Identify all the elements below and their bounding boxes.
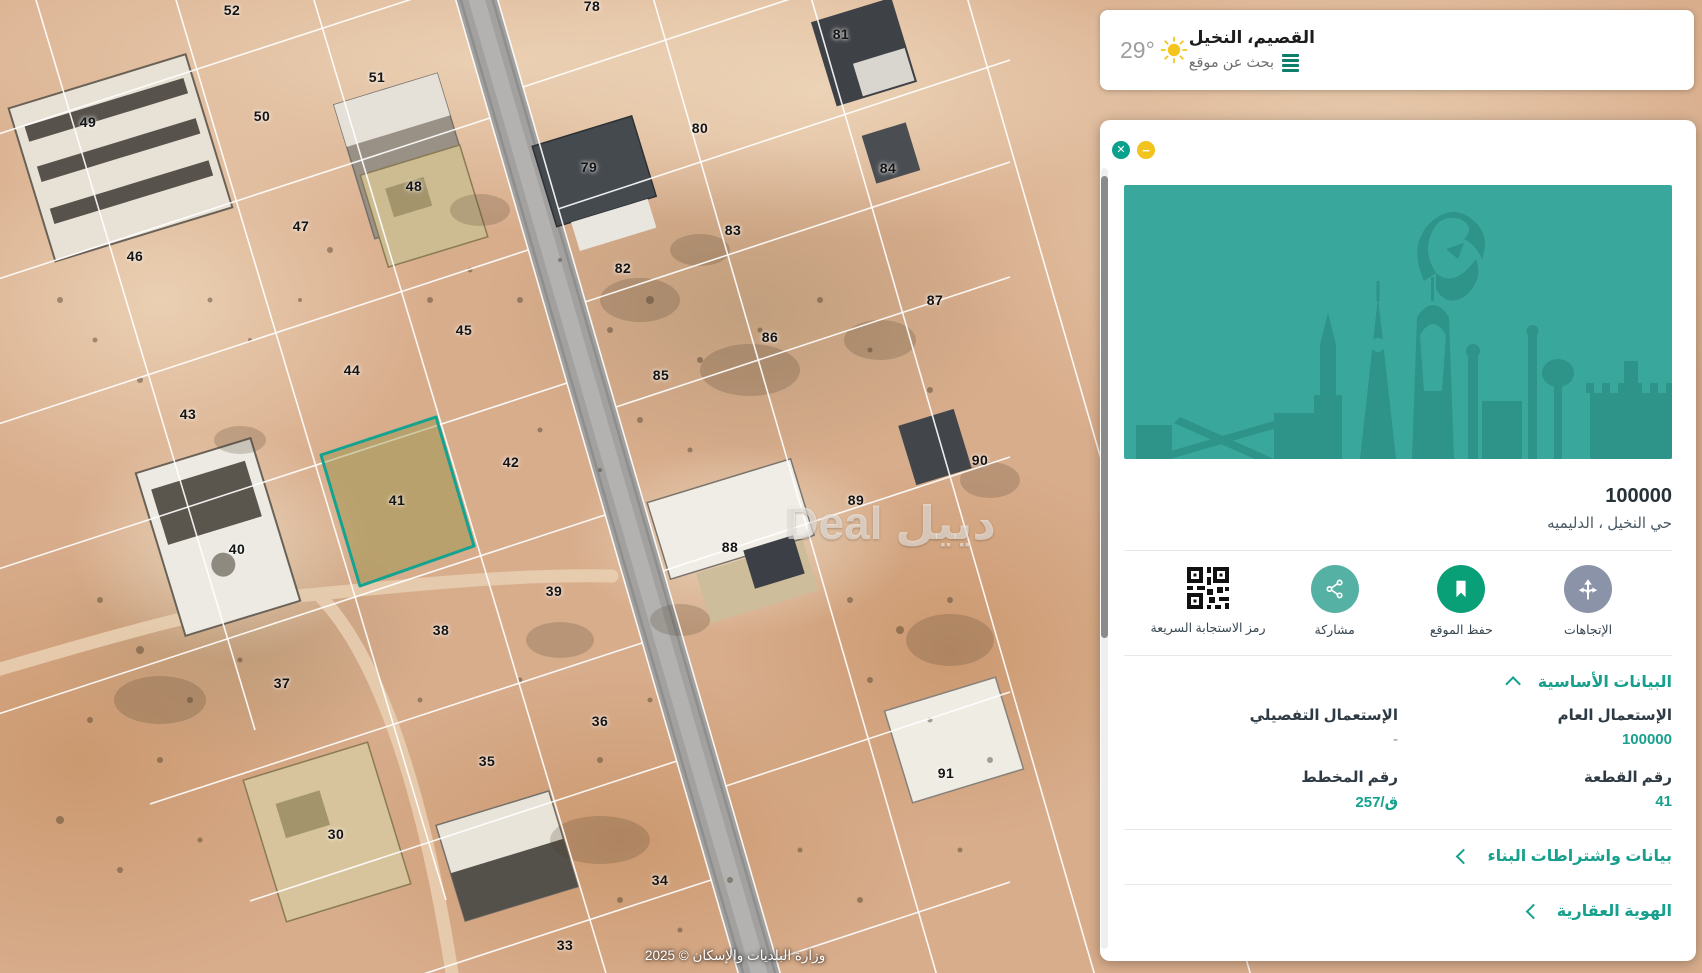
action-buttons-row: الإتجاهات حفظ الموقع مشاركة xyxy=(1124,565,1672,637)
chevron-left-icon xyxy=(1456,848,1472,864)
section-basic-data-title: البيانات الأساسية xyxy=(1538,672,1672,692)
save-location-button[interactable]: حفظ الموقع xyxy=(1413,565,1509,637)
parcel-label-86[interactable]: 86 xyxy=(762,329,779,345)
parcel-label-36[interactable]: 36 xyxy=(592,713,609,729)
parcel-label-87[interactable]: 87 xyxy=(927,292,944,308)
parcel-label-49[interactable]: 49 xyxy=(80,114,97,130)
basic-data-fields: الإستعمال العام 100000 الإستعمال التفصيل… xyxy=(1124,706,1672,811)
parcel-label-51[interactable]: 51 xyxy=(369,69,386,85)
field-parcel-number: رقم القطعة 41 xyxy=(1398,768,1672,811)
parcel-label-37[interactable]: 37 xyxy=(274,675,291,691)
section-basic-data[interactable]: البيانات الأساسية xyxy=(1124,672,1672,692)
chevron-up-icon xyxy=(1505,676,1521,692)
parcel-label-85[interactable]: 85 xyxy=(653,367,670,383)
section-real-estate-identity[interactable]: الهوية العقارية xyxy=(1124,901,1672,921)
deal-watermark: دييل Deal xyxy=(806,496,996,550)
save-location-icon xyxy=(1437,565,1485,613)
parcel-label-81[interactable]: 81 xyxy=(833,26,850,42)
panel-scrollbar-track[interactable] xyxy=(1101,168,1108,949)
save-location-label: حفظ الموقع xyxy=(1430,622,1493,637)
parcel-label-91[interactable]: 91 xyxy=(938,765,955,781)
directions-button[interactable]: الإتجاهات xyxy=(1540,565,1636,637)
parcel-label-82[interactable]: 82 xyxy=(615,260,632,276)
directions-label: الإتجاهات xyxy=(1564,622,1612,637)
parcel-label-52[interactable]: 52 xyxy=(224,2,241,18)
parcel-label-45[interactable]: 45 xyxy=(456,322,473,338)
weather-widget: 29° xyxy=(1120,35,1189,65)
parcel-title: 100000 xyxy=(1124,485,1672,508)
divider xyxy=(1124,655,1672,656)
parcel-label-33[interactable]: 33 xyxy=(557,937,574,953)
divider xyxy=(1124,884,1672,885)
field-plan-number: رقم المخطط ق/257 xyxy=(1124,768,1398,811)
parcel-label-47[interactable]: 47 xyxy=(293,218,310,234)
parcel-label-39[interactable]: 39 xyxy=(546,583,563,599)
menu-icon[interactable] xyxy=(1282,54,1299,72)
sun-icon xyxy=(1159,35,1189,65)
qr-code-icon xyxy=(1185,565,1231,611)
directions-icon xyxy=(1564,565,1612,613)
section-real-estate-identity-title: الهوية العقارية xyxy=(1557,901,1672,921)
divider xyxy=(1124,550,1672,551)
parcel-label-35[interactable]: 35 xyxy=(479,753,496,769)
chevron-left-icon xyxy=(1526,903,1542,919)
parcel-label-50[interactable]: 50 xyxy=(254,108,271,124)
parcel-label-30[interactable]: 30 xyxy=(328,826,345,842)
parcel-label-40[interactable]: 40 xyxy=(229,541,246,557)
parcel-label-34[interactable]: 34 xyxy=(652,872,669,888)
parcel-label-83[interactable]: 83 xyxy=(725,222,742,238)
section-building-requirements[interactable]: بيانات واشتراطات البناء xyxy=(1124,846,1672,866)
share-button[interactable]: مشاركة xyxy=(1287,565,1383,637)
parcel-label-84[interactable]: 84 xyxy=(880,160,897,176)
parcel-details-panel: ✕ − xyxy=(1100,120,1696,961)
parcel-label-79[interactable]: 79 xyxy=(581,159,598,175)
parcel-label-38[interactable]: 38 xyxy=(433,622,450,638)
minimize-button[interactable]: − xyxy=(1137,141,1155,159)
share-icon xyxy=(1311,565,1359,613)
placeholder-skyline-image xyxy=(1124,185,1672,459)
parcel-subtitle: حي النخيل ، الدليميه xyxy=(1124,514,1672,532)
header-card: 29° القصيم، النخيل بحث عن موقع xyxy=(1100,10,1694,90)
parcel-label-90[interactable]: 90 xyxy=(972,452,989,468)
map-attribution: وزارة البلديات والإسكان © 2025 xyxy=(645,948,825,964)
divider xyxy=(1124,829,1672,830)
location-title: القصيم، النخيل xyxy=(1189,28,1315,48)
parcel-label-78[interactable]: 78 xyxy=(584,0,601,14)
parcel-label-43[interactable]: 43 xyxy=(180,406,197,422)
search-location[interactable]: بحث عن موقع xyxy=(1189,54,1299,72)
close-button[interactable]: ✕ xyxy=(1112,141,1130,159)
parcel-label-42[interactable]: 42 xyxy=(503,454,520,470)
qr-code-label: رمز الاستجابة السريعة xyxy=(1151,620,1266,635)
app-window: 5251504948474645444342414039383736353034… xyxy=(0,0,1702,973)
qr-code-button[interactable]: رمز الاستجابة السريعة xyxy=(1160,565,1256,637)
field-general-use: الإستعمال العام 100000 xyxy=(1398,706,1672,748)
parcel-label-48[interactable]: 48 xyxy=(406,178,423,194)
panel-scrollbar-thumb[interactable] xyxy=(1101,176,1108,638)
section-building-requirements-title: بيانات واشتراطات البناء xyxy=(1487,846,1672,866)
temperature-value: 29° xyxy=(1120,37,1155,64)
search-location-label: بحث عن موقع xyxy=(1189,55,1274,71)
parcel-label-80[interactable]: 80 xyxy=(692,120,709,136)
parcel-label-46[interactable]: 46 xyxy=(127,248,144,264)
share-label: مشاركة xyxy=(1315,622,1355,637)
parcel-label-88[interactable]: 88 xyxy=(722,539,739,555)
field-detailed-use: الإستعمال التفصيلي - xyxy=(1124,706,1398,748)
parcel-label-44[interactable]: 44 xyxy=(344,362,361,378)
parcel-label-41[interactable]: 41 xyxy=(389,492,406,508)
